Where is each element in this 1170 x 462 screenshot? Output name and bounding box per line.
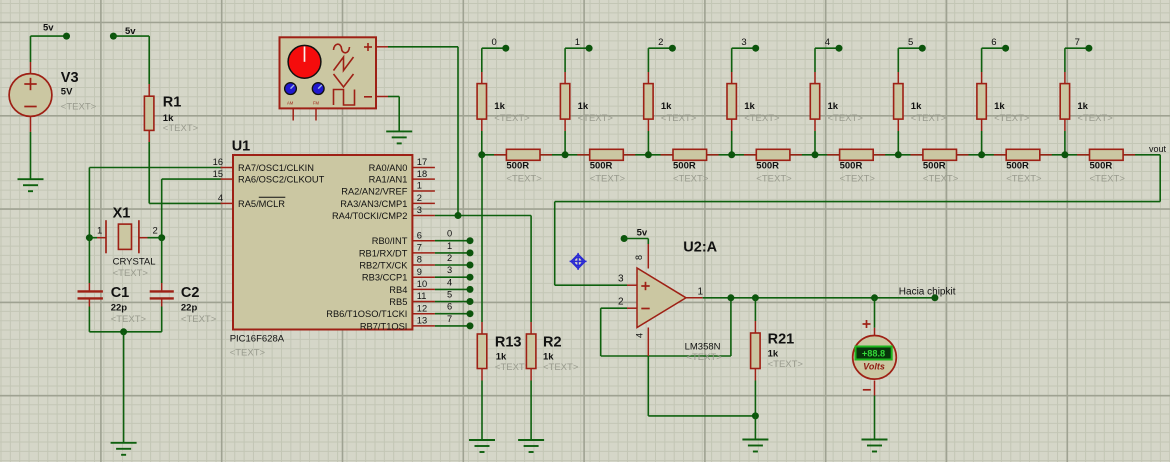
svg-text:<TEXT>: <TEXT> bbox=[1090, 173, 1126, 184]
svg-text:R2: R2 bbox=[543, 335, 562, 351]
svg-text:FM: FM bbox=[313, 101, 320, 106]
svg-text:<TEXT>: <TEXT> bbox=[113, 268, 149, 279]
svg-text:3: 3 bbox=[417, 205, 422, 215]
svg-text:<TEXT>: <TEXT> bbox=[686, 352, 722, 363]
svg-text:R13: R13 bbox=[495, 335, 522, 351]
svg-text:500R: 500R bbox=[506, 161, 529, 172]
svg-text:U2:A: U2:A bbox=[683, 240, 717, 256]
svg-text:<TEXT>: <TEXT> bbox=[911, 113, 947, 124]
svg-text:0: 0 bbox=[492, 37, 497, 48]
svg-text:RB4: RB4 bbox=[389, 285, 407, 295]
svg-text:7: 7 bbox=[447, 314, 452, 324]
svg-text:5: 5 bbox=[908, 37, 913, 48]
svg-text:10: 10 bbox=[417, 279, 427, 289]
svg-text:RA2/AN2/VREF: RA2/AN2/VREF bbox=[341, 187, 407, 197]
svg-text:1k: 1k bbox=[828, 101, 839, 112]
svg-text:0: 0 bbox=[447, 229, 452, 239]
svg-text:RB1/RX/DT: RB1/RX/DT bbox=[359, 248, 408, 258]
svg-text:RA7/OSC1/CLKIN: RA7/OSC1/CLKIN bbox=[238, 163, 314, 173]
svg-text:1k: 1k bbox=[994, 101, 1005, 112]
svg-text:1: 1 bbox=[417, 181, 422, 191]
svg-text:1k: 1k bbox=[768, 349, 779, 360]
svg-text:500R: 500R bbox=[590, 161, 613, 172]
svg-text:<TEXT>: <TEXT> bbox=[543, 362, 579, 373]
svg-text:4: 4 bbox=[634, 333, 644, 338]
svg-text:<TEXT>: <TEXT> bbox=[1077, 113, 1113, 124]
svg-text:6: 6 bbox=[417, 230, 422, 240]
svg-text:<TEXT>: <TEXT> bbox=[578, 113, 614, 124]
svg-text:16: 16 bbox=[213, 157, 223, 167]
svg-text:<TEXT>: <TEXT> bbox=[590, 173, 626, 184]
svg-text:C2: C2 bbox=[181, 285, 200, 301]
svg-text:2: 2 bbox=[618, 296, 624, 307]
svg-text:15: 15 bbox=[213, 169, 223, 179]
svg-text:<TEXT>: <TEXT> bbox=[661, 113, 697, 124]
svg-text:PIC16F628A: PIC16F628A bbox=[230, 334, 285, 345]
svg-text:1k: 1k bbox=[578, 101, 589, 112]
svg-text:6: 6 bbox=[991, 37, 996, 48]
svg-text:LM358N: LM358N bbox=[685, 341, 721, 352]
svg-text:V3: V3 bbox=[61, 70, 79, 86]
svg-text:1k: 1k bbox=[1077, 101, 1088, 112]
svg-text:<TEXT>: <TEXT> bbox=[756, 173, 792, 184]
svg-text:7: 7 bbox=[417, 243, 422, 253]
svg-text:13: 13 bbox=[417, 316, 427, 326]
svg-text:+88.8: +88.8 bbox=[862, 349, 885, 359]
svg-text:5v: 5v bbox=[637, 228, 648, 239]
svg-text:RA6/OSC2/CLKOUT: RA6/OSC2/CLKOUT bbox=[238, 175, 325, 185]
svg-text:<TEXT>: <TEXT> bbox=[744, 113, 780, 124]
svg-text:5v: 5v bbox=[43, 23, 54, 34]
svg-text:<TEXT>: <TEXT> bbox=[495, 362, 531, 373]
svg-text:8: 8 bbox=[634, 255, 644, 260]
svg-text:RB2/TX/CK: RB2/TX/CK bbox=[359, 261, 408, 271]
svg-text:Volts: Volts bbox=[863, 361, 885, 371]
svg-text:R21: R21 bbox=[768, 332, 795, 348]
svg-text:1: 1 bbox=[698, 286, 704, 297]
svg-text:R1: R1 bbox=[163, 95, 182, 111]
svg-text:<TEXT>: <TEXT> bbox=[1006, 173, 1042, 184]
svg-text:1k: 1k bbox=[661, 101, 672, 112]
svg-text:5: 5 bbox=[447, 290, 452, 300]
svg-text:500R: 500R bbox=[1006, 161, 1029, 172]
svg-text:RA0/AN0: RA0/AN0 bbox=[369, 163, 408, 173]
svg-text:500R: 500R bbox=[756, 161, 779, 172]
svg-text:2: 2 bbox=[447, 253, 452, 263]
svg-text:<TEXT>: <TEXT> bbox=[923, 173, 959, 184]
svg-text:500R: 500R bbox=[923, 161, 946, 172]
svg-text:12: 12 bbox=[417, 303, 427, 313]
svg-text:RB6/T1OSO/T1CKI: RB6/T1OSO/T1CKI bbox=[326, 309, 407, 319]
svg-text:5v: 5v bbox=[125, 26, 136, 37]
svg-text:2: 2 bbox=[153, 226, 158, 237]
svg-text:17: 17 bbox=[417, 157, 427, 167]
svg-text:<TEXT>: <TEXT> bbox=[181, 314, 217, 325]
svg-text:RA1/AN1: RA1/AN1 bbox=[369, 175, 408, 185]
svg-text:1k: 1k bbox=[543, 352, 554, 363]
svg-text:<TEXT>: <TEXT> bbox=[828, 113, 864, 124]
svg-text:Hacia chipkit: Hacia chipkit bbox=[899, 287, 956, 298]
svg-text:RB0/INT: RB0/INT bbox=[372, 236, 408, 246]
svg-text:6: 6 bbox=[447, 302, 452, 312]
svg-text:11: 11 bbox=[417, 291, 427, 301]
svg-text:1: 1 bbox=[447, 241, 452, 251]
svg-text:<TEXT>: <TEXT> bbox=[494, 113, 530, 124]
svg-text:<TEXT>: <TEXT> bbox=[994, 113, 1030, 124]
svg-text:3: 3 bbox=[618, 273, 624, 284]
svg-text:X1: X1 bbox=[113, 206, 131, 222]
svg-text:RA4/T0CKI/CMP2: RA4/T0CKI/CMP2 bbox=[332, 211, 407, 221]
svg-text:AM: AM bbox=[287, 101, 294, 106]
svg-text:500R: 500R bbox=[840, 161, 863, 172]
svg-text:500R: 500R bbox=[673, 161, 696, 172]
svg-text:<TEXT>: <TEXT> bbox=[230, 348, 266, 359]
svg-text:vout: vout bbox=[1149, 144, 1167, 154]
svg-text:RA5/MCLR: RA5/MCLR bbox=[238, 199, 285, 209]
svg-text:<TEXT>: <TEXT> bbox=[840, 173, 876, 184]
svg-text:4: 4 bbox=[447, 277, 452, 287]
svg-text:RB3/CCP1: RB3/CCP1 bbox=[362, 273, 407, 283]
svg-text:RB7/T1OSI: RB7/T1OSI bbox=[360, 321, 408, 331]
svg-text:3: 3 bbox=[741, 37, 746, 48]
svg-text:1k: 1k bbox=[911, 101, 922, 112]
svg-text:18: 18 bbox=[417, 169, 427, 179]
svg-text:4: 4 bbox=[825, 37, 830, 48]
svg-text:7: 7 bbox=[1075, 37, 1080, 48]
svg-text:8: 8 bbox=[417, 255, 422, 265]
svg-text:<TEXT>: <TEXT> bbox=[163, 123, 199, 134]
svg-text:1k: 1k bbox=[494, 101, 505, 112]
svg-text:<TEXT>: <TEXT> bbox=[111, 314, 147, 325]
svg-text:<TEXT>: <TEXT> bbox=[673, 173, 709, 184]
svg-text:22p: 22p bbox=[181, 303, 198, 314]
svg-text:22p: 22p bbox=[111, 303, 128, 314]
svg-text:2: 2 bbox=[658, 37, 663, 48]
svg-text:<TEXT>: <TEXT> bbox=[768, 359, 804, 370]
svg-text:CRYSTAL: CRYSTAL bbox=[113, 257, 156, 268]
svg-text:4: 4 bbox=[218, 193, 223, 203]
svg-text:3: 3 bbox=[447, 265, 452, 275]
svg-text:2: 2 bbox=[417, 193, 422, 203]
svg-text:<TEXT>: <TEXT> bbox=[61, 102, 97, 113]
svg-text:RB5: RB5 bbox=[389, 297, 407, 307]
svg-text:5V: 5V bbox=[61, 87, 73, 98]
svg-text:9: 9 bbox=[417, 267, 422, 277]
svg-text:1: 1 bbox=[97, 226, 102, 237]
svg-text:C1: C1 bbox=[111, 285, 130, 301]
svg-text:RA3/AN3/CMP1: RA3/AN3/CMP1 bbox=[340, 199, 407, 209]
svg-text:U1: U1 bbox=[232, 139, 251, 155]
svg-text:500R: 500R bbox=[1090, 161, 1113, 172]
svg-text:1: 1 bbox=[575, 37, 580, 48]
svg-text:<TEXT>: <TEXT> bbox=[506, 173, 542, 184]
svg-text:1k: 1k bbox=[496, 352, 507, 363]
svg-text:1k: 1k bbox=[744, 101, 755, 112]
